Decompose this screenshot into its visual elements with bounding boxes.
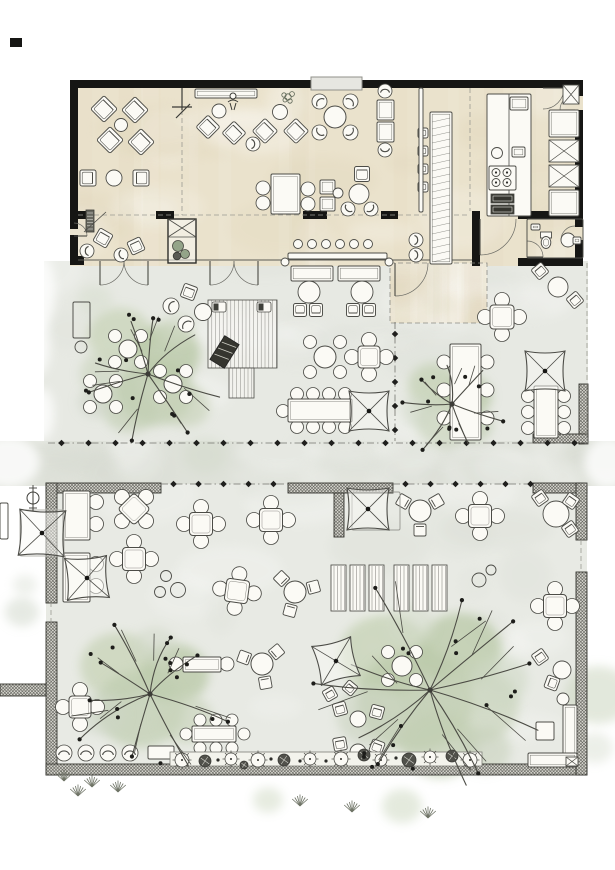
entry-mat (311, 77, 362, 90)
shrub (461, 751, 480, 770)
sun-lounger (432, 565, 447, 611)
tub-chair (56, 745, 72, 761)
wood-deck (229, 368, 254, 398)
tub-chair (343, 125, 358, 140)
tub-chair (378, 84, 392, 98)
round-table (298, 281, 320, 303)
equipment-box (566, 757, 578, 766)
oven (491, 205, 514, 214)
table (512, 147, 525, 157)
shrub (422, 749, 439, 766)
round-table (385, 258, 393, 266)
table (549, 110, 579, 137)
round-table (492, 179, 500, 187)
wall (518, 258, 583, 266)
umbrella (349, 391, 389, 431)
shrub (298, 759, 301, 762)
sun-lounger (331, 565, 346, 611)
round-table (492, 169, 500, 177)
shrub-mass (253, 787, 283, 813)
armchair (369, 704, 385, 720)
round-table (281, 258, 289, 266)
round-table (553, 661, 571, 679)
floor-plan-drawing (0, 0, 615, 870)
tub-chair (178, 316, 194, 332)
umbrella (18, 509, 66, 557)
stone-wall (46, 622, 57, 775)
shrub (240, 761, 248, 769)
shrub (173, 751, 192, 770)
round-table (212, 104, 226, 118)
armchair (363, 304, 376, 317)
table (573, 237, 581, 244)
shrub (223, 751, 240, 768)
round-table (557, 693, 569, 705)
armchair (355, 167, 370, 182)
bar-stool (294, 240, 303, 249)
round-table (503, 169, 511, 177)
tub-chair (80, 244, 94, 258)
round-table (195, 304, 212, 321)
toilet (541, 232, 552, 249)
tub-chair (343, 94, 358, 109)
armchair (80, 170, 96, 186)
round-table (115, 119, 128, 132)
tub-chair (163, 298, 179, 314)
round-table (350, 711, 366, 727)
armchair (347, 304, 360, 317)
bar-stool (350, 240, 359, 249)
sun-lounger (413, 565, 428, 611)
table (419, 88, 423, 212)
shrub (402, 753, 416, 767)
umbrella (347, 488, 389, 530)
shrub (278, 754, 290, 766)
table (549, 190, 579, 216)
shrub (373, 752, 390, 769)
equipment-box (563, 85, 579, 104)
armchair (294, 304, 307, 317)
paper-fade (24, 316, 50, 376)
bar-stool (336, 240, 345, 249)
table (320, 197, 335, 211)
tub-chair (78, 745, 94, 761)
round-table (492, 148, 503, 159)
deck-mat (212, 302, 226, 312)
stone-wall (0, 684, 46, 696)
tub-chair (312, 94, 327, 109)
round-table (106, 170, 122, 186)
shrub (269, 757, 272, 760)
shrub (199, 755, 211, 767)
table (338, 266, 380, 281)
armchair (133, 170, 149, 186)
table (288, 253, 387, 259)
shrub (332, 750, 351, 769)
armchair (332, 736, 347, 751)
shrub-mass (382, 789, 422, 823)
table (377, 100, 394, 120)
tub-chair (341, 202, 355, 216)
table (536, 722, 554, 740)
round-table (548, 277, 568, 297)
umbrella (65, 556, 110, 601)
tub-chair (114, 248, 128, 262)
table (510, 97, 528, 110)
round-table (503, 179, 511, 187)
shrub (249, 751, 268, 770)
tub-chair (409, 233, 423, 247)
tub-chair (409, 248, 423, 262)
paper-fade (30, 388, 54, 440)
bar-stool (364, 240, 373, 249)
round-table (349, 184, 369, 204)
round-table (351, 281, 373, 303)
round-table (273, 105, 288, 120)
shrub-mass (5, 598, 39, 627)
equipment-box (549, 165, 579, 187)
table (195, 89, 257, 98)
stone-wall (334, 493, 344, 537)
wall (10, 38, 22, 47)
shrub (302, 751, 319, 768)
wall (472, 211, 480, 266)
shrub-mass (13, 575, 37, 595)
umbrella (525, 351, 565, 391)
deck-mat (257, 302, 271, 312)
table (531, 224, 540, 230)
shrub (216, 758, 219, 761)
shrub (324, 759, 327, 762)
equipment-box (549, 140, 579, 162)
sun-lounger (350, 565, 365, 611)
tub-chair (378, 143, 392, 157)
armchair (310, 304, 323, 317)
oven (491, 194, 514, 203)
shrub-mass (77, 285, 113, 316)
floor-plan-page (0, 0, 615, 870)
planter-column (168, 219, 196, 263)
shrub (394, 756, 397, 759)
tub-chair (312, 125, 327, 140)
table (430, 112, 452, 264)
tub-chair (364, 202, 378, 216)
tub-chair (246, 137, 260, 151)
long-table (522, 386, 571, 438)
shrub-mass (183, 436, 227, 473)
round-table (324, 106, 346, 128)
bar-stool (308, 240, 317, 249)
table (377, 122, 394, 142)
wall (70, 80, 78, 229)
table (291, 266, 333, 281)
bar-stool (322, 240, 331, 249)
round-table (333, 188, 343, 198)
tub-chair (100, 745, 116, 761)
long-table (169, 657, 234, 672)
